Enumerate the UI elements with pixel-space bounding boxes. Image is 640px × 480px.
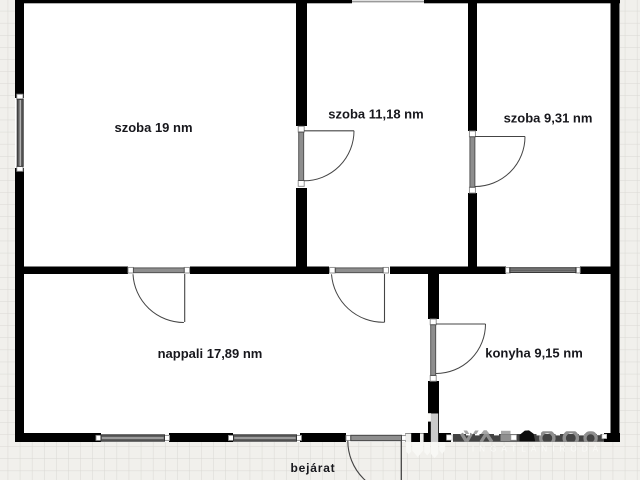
svg-text:szoba 9,31 nm: szoba 9,31 nm bbox=[504, 111, 593, 126]
svg-text:konyha 9,15 nm: konyha 9,15 nm bbox=[485, 346, 583, 361]
svg-text:szoba 19 nm: szoba 19 nm bbox=[114, 120, 192, 135]
svg-text:szoba 11,18 nm: szoba 11,18 nm bbox=[328, 107, 423, 122]
svg-text:nappali 17,89 nm: nappali 17,89 nm bbox=[158, 346, 263, 361]
svg-text:bejárat: bejárat bbox=[291, 461, 336, 475]
svg-text:INGATLANIRODA: INGATLANIRODA bbox=[472, 444, 603, 453]
